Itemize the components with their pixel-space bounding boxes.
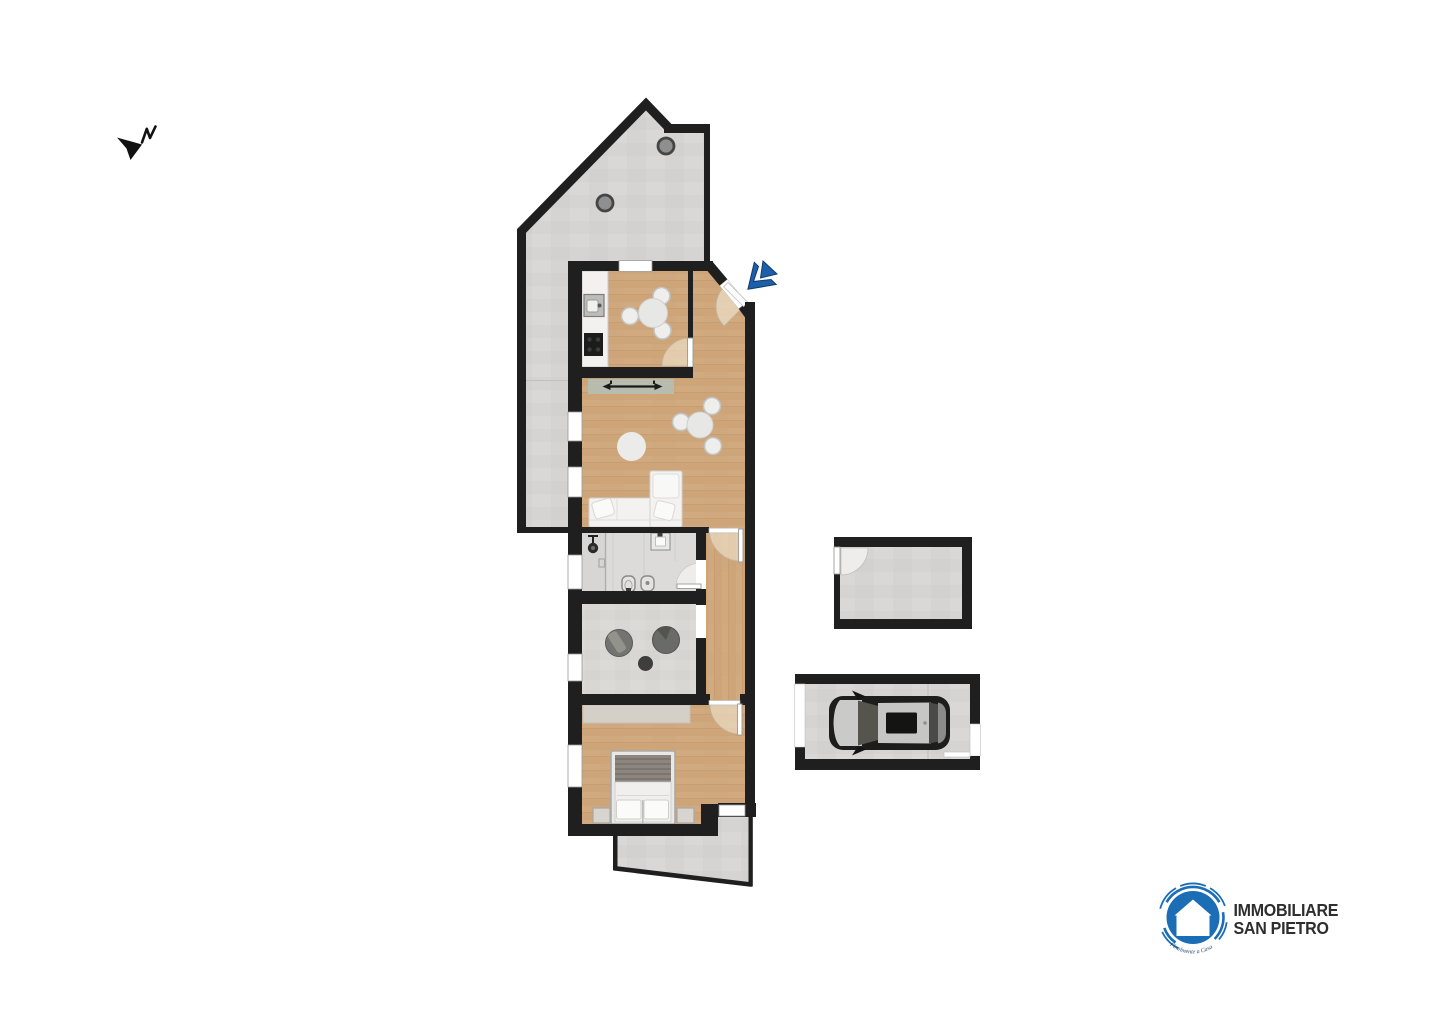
svg-text:IMMOBILIARE: IMMOBILIARE <box>1234 900 1339 920</box>
svg-text:SAN PIETRO: SAN PIETRO <box>1234 918 1329 938</box>
